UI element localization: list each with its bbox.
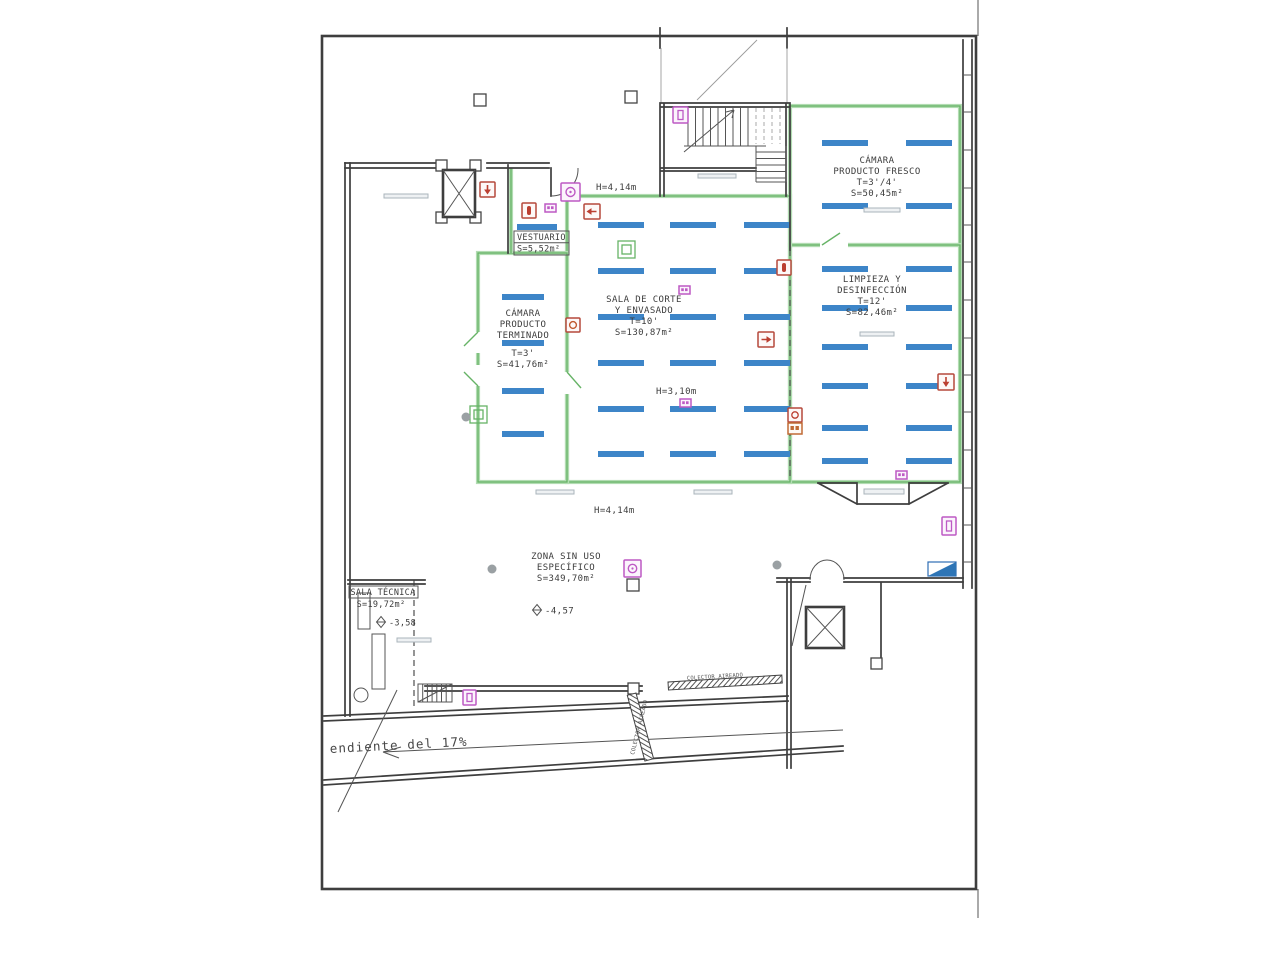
storage-rack-corte: [744, 406, 790, 412]
room-name: ZONA SIN USO: [531, 552, 601, 562]
room-corte-outline: [567, 196, 790, 482]
height-dimension-mid: H=3,10m: [656, 387, 697, 397]
red-circle-icon: [566, 318, 580, 332]
room-name: SALA DE CORTE: [606, 295, 682, 305]
room-label-limpieza: LIMPIEZA Y DESINFECCIÓN T=12' S=82,46m²: [837, 275, 907, 318]
level-value: -3,58: [389, 619, 416, 629]
bottom-wall: [425, 686, 642, 691]
room-name: DESINFECCIÓN: [837, 284, 907, 296]
right-wall-studs: [963, 75, 972, 562]
column: [618, 241, 635, 258]
storage-rack-terminado: [502, 294, 544, 300]
level-value: -4,57: [545, 607, 574, 617]
level-marker-tecnica: -3,58: [377, 617, 417, 629]
room-label-zona: ZONA SIN USO ESPECÍFICO S=349,70m²: [531, 552, 601, 584]
storage-rack-fresco: [906, 140, 952, 146]
room-area: S=41,76m²: [497, 360, 549, 370]
storage-rack-limpieza: [822, 458, 868, 464]
storage-rack-fresco: [906, 203, 952, 209]
column: [625, 91, 637, 103]
storage-rack-corte: [598, 360, 644, 366]
room-area: S=50,45m²: [851, 189, 903, 199]
storage-rack-limpieza: [906, 425, 952, 431]
scanned-floor-plan: CÁMARA PRODUCTO FRESCO T=3'/4' S=50,45m²…: [0, 0, 1280, 960]
alarm-bell-icon: [561, 183, 580, 201]
exit-right-icon: [758, 332, 774, 347]
grid-ticks: [660, 28, 787, 48]
detector-icon: [545, 204, 556, 212]
storage-rack-corte: [744, 451, 790, 457]
storage-rack-corte: [670, 360, 716, 366]
room-temp: T=10': [629, 317, 658, 327]
room-temp: T=3'/4': [857, 178, 898, 188]
storage-rack-limpieza: [822, 425, 868, 431]
level-diamond: [533, 605, 542, 616]
storage-rack-corte: [598, 406, 644, 412]
storage-rack-terminado: [502, 431, 544, 437]
storage-rack-corte: [670, 314, 716, 320]
room-name: Y ENVASADO: [615, 306, 673, 316]
ramp-edge-1: [324, 696, 788, 721]
room-name: TERMINADO: [497, 331, 549, 341]
storage-rack-fresco: [822, 140, 868, 146]
room-temp: T=12': [857, 297, 886, 307]
extinguisher-icon: [522, 203, 536, 218]
room-area: S=5,52m²: [517, 245, 560, 255]
storage-rack-limpieza: [906, 305, 952, 311]
diagonal-wall: [792, 585, 806, 646]
storage-rack-limpieza: [822, 383, 868, 389]
elevator-shaft-bottom: [806, 607, 844, 648]
room-name: PRODUCTO: [500, 320, 547, 330]
storage-rack-limpieza: [822, 266, 868, 272]
column: [474, 94, 486, 106]
room-name: PRODUCTO FRESCO: [833, 167, 920, 177]
alarm-bell-icon: [624, 560, 641, 591]
room-label-fresco: CÁMARA PRODUCTO FRESCO T=3'/4' S=50,45m²: [833, 154, 920, 199]
storage-rack-corte: [744, 222, 790, 228]
room-name: VESTUARIO: [517, 233, 566, 243]
room-name: SALA TÉCNICA: [350, 586, 415, 598]
room-area: S=82,46m²: [846, 308, 898, 318]
storage-rack-limpieza: [906, 344, 952, 350]
construction-lines: [661, 40, 787, 103]
junction-box: [628, 683, 639, 694]
room-area: S=349,70m²: [537, 574, 595, 584]
level-marker-zona: -4,57: [533, 605, 575, 617]
ramp-slope-label: endiente del 17%: [329, 734, 468, 756]
storage-rack-limpieza: [822, 344, 868, 350]
storage-rack-corte: [744, 360, 790, 366]
storage-rack-corte: [670, 406, 716, 412]
storage-rack-corte: [670, 268, 716, 274]
hydrant-icon: [463, 690, 476, 705]
exit-down-icon: [938, 374, 954, 390]
room-name: ESPECÍFICO: [537, 561, 595, 573]
room-name: CÁMARA: [506, 307, 541, 319]
column: [871, 658, 882, 669]
storage-rack-limpieza: [906, 266, 952, 272]
storage-rack-vestuario: [517, 224, 557, 230]
storage-rack-corte: [598, 222, 644, 228]
exit-down-icon: [480, 182, 495, 197]
storage-rack-corte: [670, 222, 716, 228]
height-dimension-top: H=4,14m: [596, 183, 637, 193]
height-dimension-low: H=4,14m: [594, 506, 635, 516]
signal-sign: [928, 562, 956, 576]
page-border: [322, 0, 978, 918]
room-label-tecnica: SALA TÉCNICA S=19,72m²: [349, 586, 418, 610]
detector-icon: [680, 399, 691, 407]
storage-rack-limpieza: [906, 458, 952, 464]
level-diamond: [377, 617, 386, 628]
storage-rack-corte: [670, 451, 716, 457]
room-temp: T=3': [511, 349, 534, 359]
elevator-shaft-top: [436, 160, 481, 223]
room-label-terminado: CÁMARA PRODUCTO TERMINADO T=3' S=41,76m²: [497, 307, 549, 370]
room-area: S=130,87m²: [615, 328, 673, 338]
loading-dock: [818, 483, 948, 504]
detector-icon: [679, 286, 690, 294]
left-wall: [345, 163, 350, 716]
right-wall: [963, 40, 972, 588]
room-name: CÁMARA: [860, 154, 895, 166]
storage-rack-terminado: [502, 388, 544, 394]
storage-rack-fresco: [822, 203, 868, 209]
detector-icon: [896, 471, 907, 479]
room-name: LIMPIEZA Y: [843, 275, 901, 285]
double-door-arcs: [810, 560, 844, 580]
storage-rack-corte: [598, 268, 644, 274]
exit-left-icon: [584, 204, 600, 219]
extinguisher-icon: [777, 260, 791, 275]
storage-rack-corte: [598, 451, 644, 457]
stacked-device-icons: [788, 408, 802, 434]
room-area: S=19,72m²: [357, 600, 406, 610]
stair-device-icon: [673, 107, 688, 123]
storage-rack-corte: [744, 314, 790, 320]
walls: [345, 40, 972, 768]
floor-plan-drawing: CÁMARA PRODUCTO FRESCO T=3'/4' S=50,45m²…: [0, 0, 1280, 960]
hydrant-icon: [942, 517, 956, 535]
